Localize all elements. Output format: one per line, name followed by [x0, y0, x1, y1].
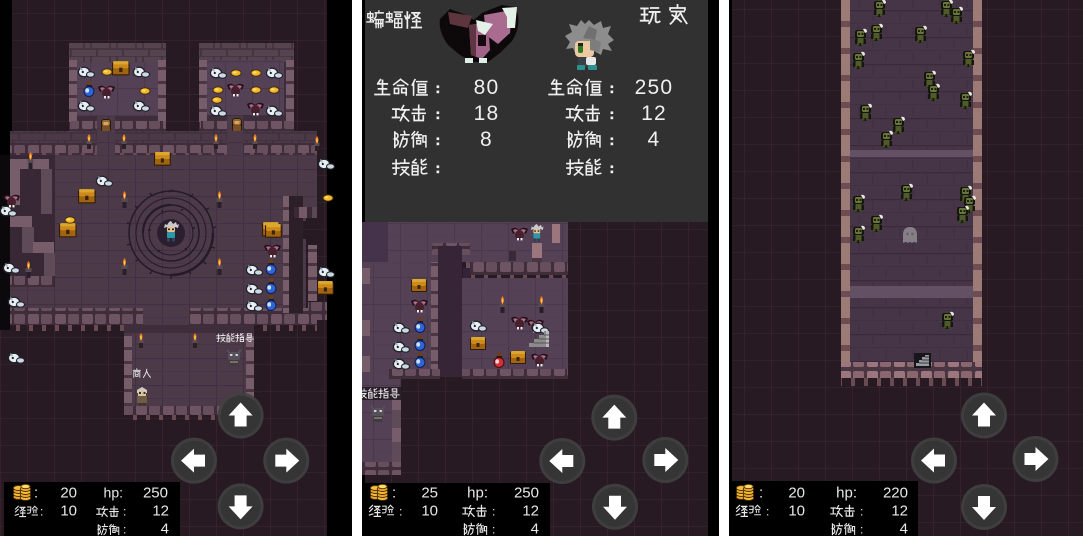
svg-text:4: 4 [161, 521, 169, 536]
svg-text::: : [492, 523, 495, 536]
svg-text:18: 18 [474, 102, 500, 125]
svg-text:250: 250 [143, 485, 168, 502]
svg-text::: : [123, 523, 126, 536]
svg-text::: : [34, 485, 38, 502]
svg-text::: : [399, 505, 402, 519]
svg-text::: : [40, 505, 43, 519]
svg-text:8: 8 [480, 128, 493, 151]
svg-text:12: 12 [641, 102, 667, 125]
svg-text:12: 12 [522, 503, 539, 520]
svg-text:220: 220 [883, 485, 908, 502]
svg-text:250: 250 [514, 485, 539, 502]
svg-text:12: 12 [152, 503, 169, 520]
svg-text:4: 4 [531, 521, 539, 536]
svg-text:10: 10 [788, 503, 805, 520]
svg-text:hp:: hp: [836, 485, 857, 502]
svg-text:25: 25 [421, 485, 438, 502]
svg-text::: : [492, 505, 495, 519]
svg-text:250: 250 [635, 76, 674, 99]
svg-text:20: 20 [60, 485, 77, 502]
svg-text:hp:: hp: [467, 485, 488, 502]
svg-text:10: 10 [60, 503, 77, 520]
svg-text:20: 20 [788, 485, 805, 502]
svg-text::: : [860, 523, 863, 536]
svg-text:10: 10 [421, 503, 438, 520]
svg-text::: : [123, 505, 126, 519]
svg-text:12: 12 [891, 503, 908, 520]
svg-text::: : [860, 505, 863, 519]
svg-text::: : [392, 485, 396, 502]
svg-text::: : [759, 485, 763, 502]
svg-text:4: 4 [648, 128, 661, 151]
svg-text:hp:: hp: [104, 485, 123, 501]
svg-text:4: 4 [900, 521, 908, 536]
svg-text:80: 80 [474, 76, 500, 99]
svg-text::: : [766, 505, 769, 519]
